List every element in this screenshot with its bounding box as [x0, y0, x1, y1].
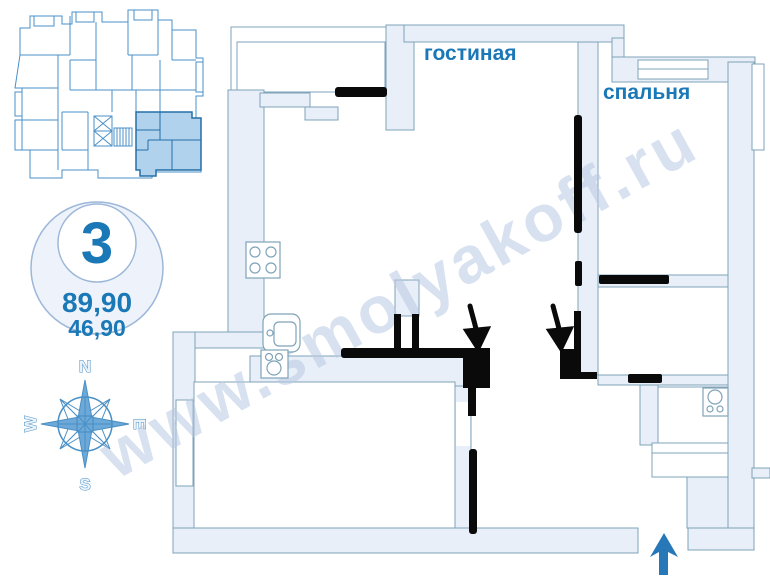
building-key-plan: [15, 10, 203, 178]
hob-icon: [261, 350, 288, 378]
stove-icon: [246, 242, 280, 278]
pointer-arrows: [467, 306, 570, 348]
balcony-door-mark: [335, 87, 387, 97]
balcony-top-left: [231, 27, 391, 92]
alcove: [652, 443, 728, 477]
pointer-arrow-left-icon: [467, 306, 487, 348]
staircase-icon: [114, 128, 132, 146]
floor-plan-page: 3 89,90 46,90 N E S W: [0, 0, 770, 578]
door-gap: [456, 402, 470, 446]
bathroom-door-mark: [628, 374, 662, 383]
living-bedroom-wall-mark: [574, 115, 582, 233]
living-room-label: гостиная: [424, 42, 517, 65]
compass-north-label: N: [79, 357, 91, 376]
kitchen-wall-mark: [341, 348, 472, 358]
total-area-value: 89,90: [62, 287, 132, 318]
bedroom-door-mark: [599, 275, 669, 284]
apartment-number: 3: [81, 211, 113, 276]
entrance-arrow-icon: [650, 533, 678, 575]
living-area-value: 46,90: [68, 315, 126, 341]
apartment-number-badge: 3 89,90 46,90: [31, 202, 163, 341]
pointer-arrow-right-icon: [550, 306, 570, 348]
compass-south-label: S: [79, 475, 90, 494]
hall-partition-mark: [469, 449, 477, 534]
bedroom-window: [638, 60, 708, 79]
sink-icon: [263, 314, 300, 352]
highlighted-apartment: [136, 112, 201, 176]
toilet-icon: [703, 388, 728, 416]
duct-block-left: [463, 348, 490, 388]
right-facade-line: [752, 64, 764, 150]
bedroom-label: спальня: [603, 81, 690, 104]
compass-west-label: W: [21, 415, 40, 432]
floor-plan-drawing: 3 89,90 46,90 N E S W: [0, 0, 770, 578]
